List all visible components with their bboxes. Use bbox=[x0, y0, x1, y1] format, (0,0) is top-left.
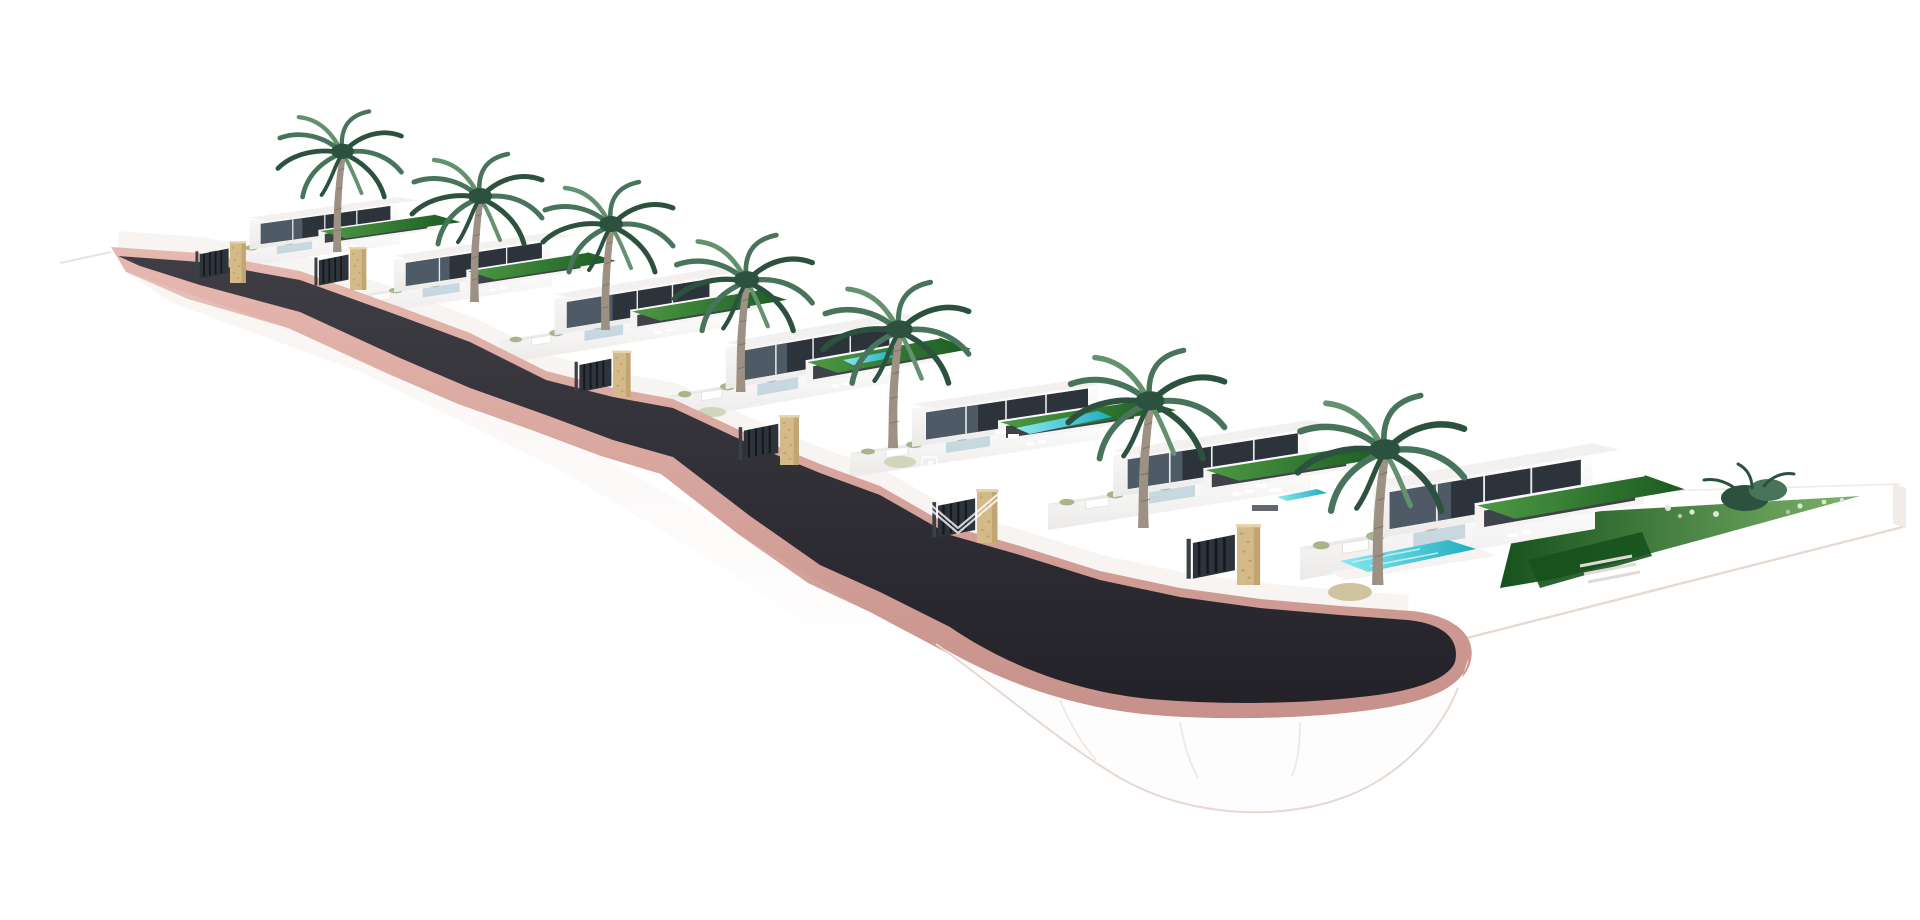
dry-grass-bush bbox=[1328, 583, 1372, 601]
watermark-country-text: SPAIN bbox=[970, 472, 1017, 484]
outdoor-dining-set bbox=[1252, 505, 1278, 511]
watermark-brand-text: PROPERTIES bbox=[948, 458, 1019, 473]
villa-development-render: PROPERTIES SPAIN bbox=[0, 0, 1920, 920]
render-canvas: PROPERTIES SPAIN bbox=[0, 0, 1920, 920]
